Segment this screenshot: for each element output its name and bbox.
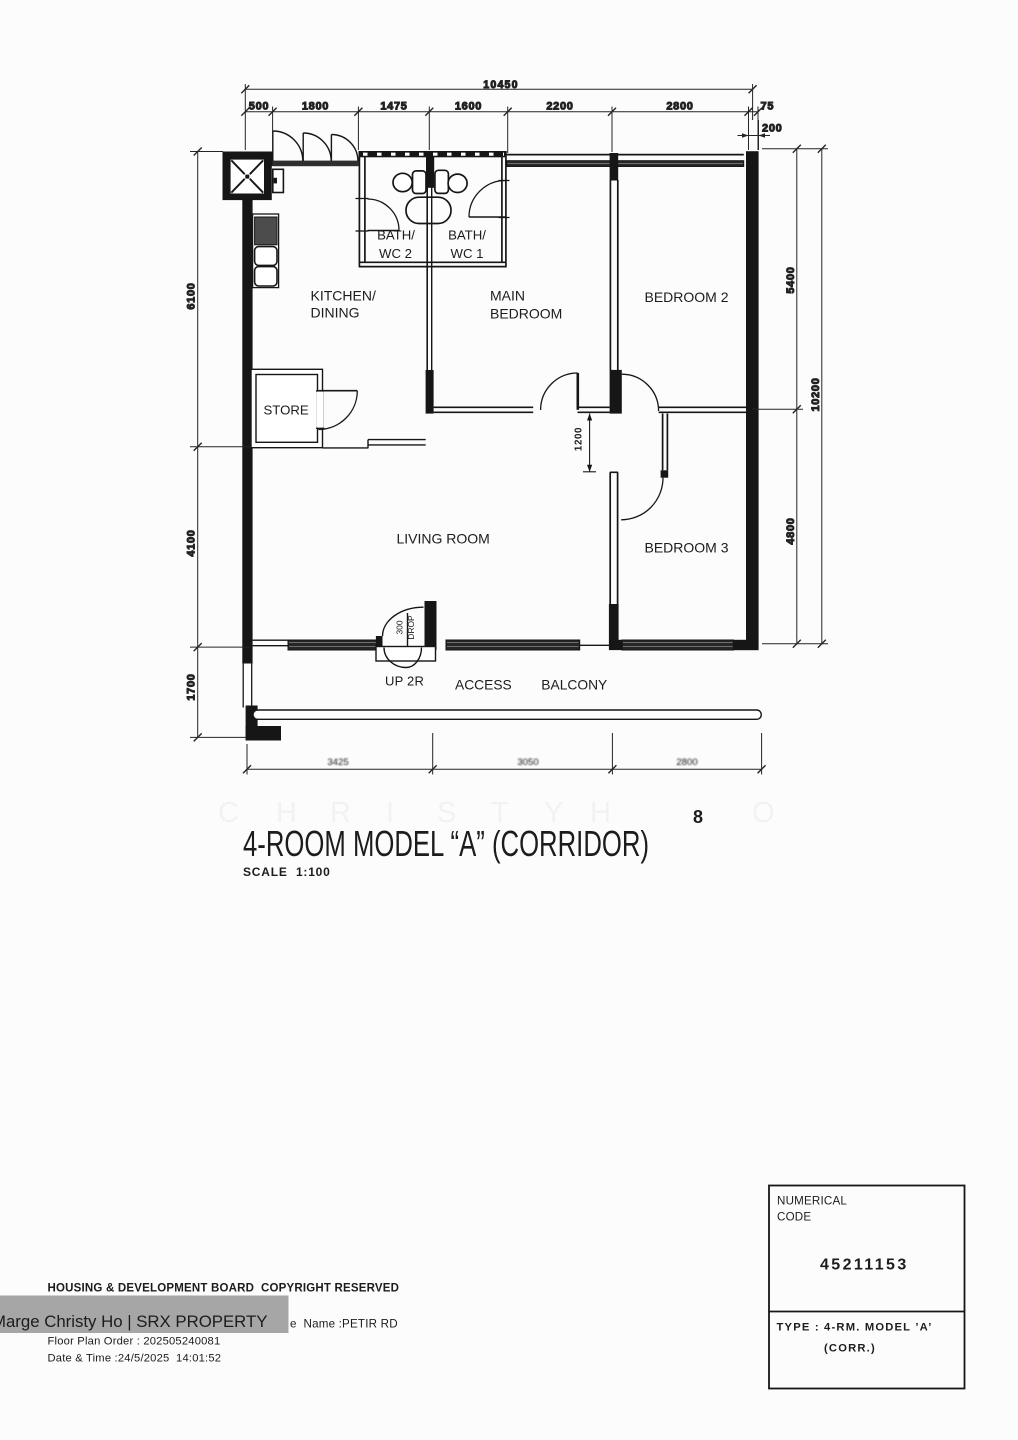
svg-text:ACCESS: ACCESS [455,678,512,693]
svg-text:3425: 3425 [327,757,348,768]
svg-text:1475: 1475 [380,101,407,113]
svg-text:MAIN: MAIN [490,288,525,304]
svg-text:O: O [752,797,775,829]
svg-text:300: 300 [395,620,405,634]
svg-text:6100: 6100 [186,282,198,309]
svg-text:5400: 5400 [785,266,797,293]
svg-text:Marge Christy Ho | SRX PROPERT: Marge Christy Ho | SRX PROPERTY [0,1312,267,1331]
svg-text:BATH/: BATH/ [377,228,415,243]
svg-text:200: 200 [762,123,782,135]
svg-text:4800: 4800 [785,517,797,544]
svg-text:WC 2: WC 2 [379,246,412,261]
svg-text:CODE: CODE [777,1211,811,1224]
svg-text:1800: 1800 [302,101,329,113]
svg-text:NUMERICAL: NUMERICAL [777,1195,847,1208]
svg-text:2200: 2200 [546,101,573,113]
svg-text:SCALE 1:100: SCALE 1:100 [243,865,331,879]
svg-text:C: C [218,797,239,829]
svg-text:4100: 4100 [186,529,198,556]
svg-text:UP 2R: UP 2R [385,674,424,689]
svg-text:KITCHEN/: KITCHEN/ [311,288,376,304]
svg-text:2800: 2800 [676,757,697,768]
svg-text:2800: 2800 [666,101,693,113]
svg-text:Date & Time :24/5/2025 14:01:: Date & Time :24/5/2025 14:01:52 [48,1353,222,1365]
svg-text:DINING: DINING [311,305,360,321]
svg-text:8: 8 [693,807,703,827]
svg-text:LIVING ROOM: LIVING ROOM [397,531,490,547]
svg-text:(CORR.): (CORR.) [824,1343,876,1355]
svg-text:1600: 1600 [455,101,482,113]
svg-text:1700: 1700 [186,673,198,700]
svg-text:e Name :PETIR RD: e Name :PETIR RD [290,1318,398,1331]
svg-text:BEDROOM: BEDROOM [490,306,562,322]
svg-text:4-ROOM MODEL “A” (CORRIDOR): 4-ROOM MODEL “A” (CORRIDOR) [243,823,649,864]
svg-text:BEDROOM 3: BEDROOM 3 [645,540,729,556]
svg-text:3050: 3050 [517,757,538,768]
svg-text:BALCONY: BALCONY [541,678,607,693]
svg-text:45211153: 45211153 [820,1257,909,1274]
svg-text:1200: 1200 [574,427,585,451]
svg-text:BEDROOM 2: BEDROOM 2 [645,289,729,305]
svg-text:75: 75 [761,101,775,113]
svg-text:Floor Plan Order : 20250524008: Floor Plan Order : 202505240081 [48,1336,221,1348]
svg-text:DROP: DROP [406,615,416,640]
svg-text:TYPE : 4-RM. MODEL ’A’: TYPE : 4-RM. MODEL ’A’ [777,1322,933,1334]
svg-text:WC 1: WC 1 [451,246,484,261]
svg-text:10450: 10450 [483,79,518,91]
svg-text:10200: 10200 [810,377,822,411]
svg-text:BATH/: BATH/ [448,228,486,243]
svg-text:500: 500 [249,101,269,113]
svg-text:HOUSING & DEVELOPMENT BOARD C: HOUSING & DEVELOPMENT BOARD COPYRIGHT RE… [48,1283,400,1295]
svg-text:STORE: STORE [264,403,309,418]
